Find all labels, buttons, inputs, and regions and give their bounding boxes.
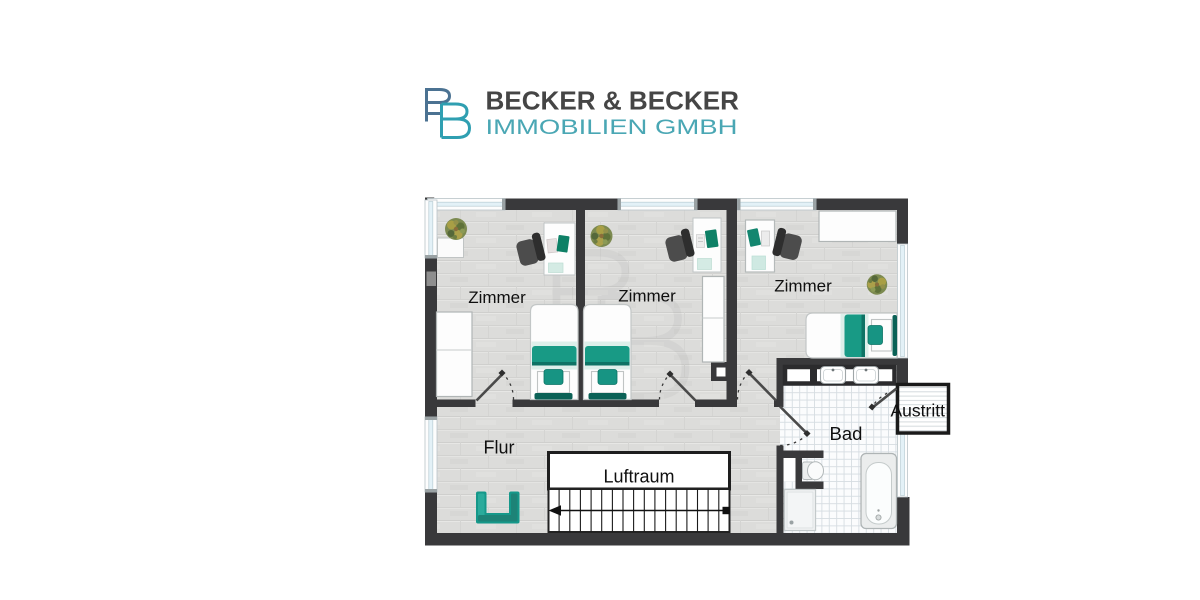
svg-text:Zimmer: Zimmer <box>618 287 676 306</box>
svg-text:Zimmer: Zimmer <box>468 288 526 307</box>
svg-text:Austritt: Austritt <box>891 401 946 421</box>
svg-text:BECKER & BECKER: BECKER & BECKER <box>486 86 740 116</box>
svg-text:Bad: Bad <box>830 423 863 444</box>
svg-text:Zimmer: Zimmer <box>774 277 832 296</box>
svg-text:IMMOBILIEN GMBH: IMMOBILIEN GMBH <box>486 115 738 139</box>
svg-text:Flur: Flur <box>484 438 515 458</box>
svg-text:Luftraum: Luftraum <box>603 467 674 487</box>
